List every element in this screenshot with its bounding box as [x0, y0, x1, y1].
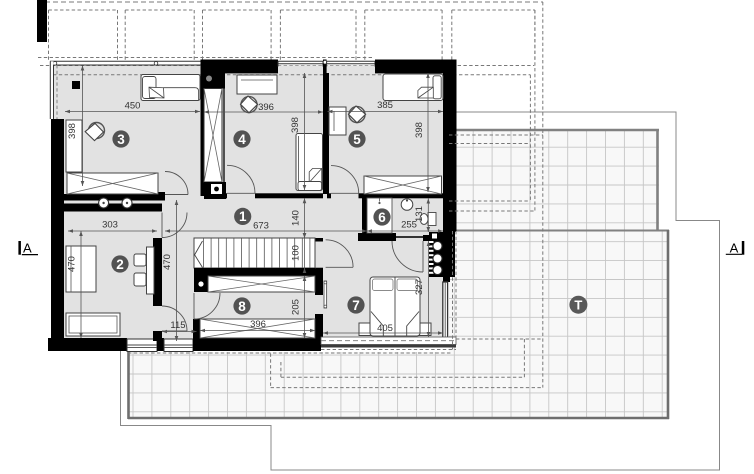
svg-text:385: 385 — [377, 100, 393, 111]
svg-text:8: 8 — [238, 299, 246, 314]
svg-text:398: 398 — [290, 117, 301, 133]
svg-text:470: 470 — [67, 256, 78, 272]
svg-text:470: 470 — [162, 254, 173, 270]
svg-text:6: 6 — [378, 210, 386, 225]
svg-text:673: 673 — [253, 221, 269, 232]
svg-text:4: 4 — [238, 132, 246, 147]
svg-text:5: 5 — [353, 132, 361, 147]
svg-text:A: A — [730, 240, 739, 255]
svg-text:396: 396 — [258, 102, 274, 113]
svg-text:450: 450 — [125, 101, 141, 112]
svg-text:396: 396 — [250, 319, 266, 330]
svg-text:205: 205 — [291, 299, 302, 315]
svg-text:327: 327 — [414, 279, 425, 295]
svg-text:115: 115 — [170, 320, 185, 331]
svg-text:T: T — [574, 298, 582, 313]
svg-text:3: 3 — [117, 132, 125, 147]
svg-text:1: 1 — [239, 209, 247, 224]
svg-text:398: 398 — [414, 122, 425, 138]
svg-text:405: 405 — [377, 323, 393, 334]
svg-text:398: 398 — [67, 123, 78, 139]
svg-text:303: 303 — [102, 220, 118, 231]
svg-text:131: 131 — [414, 206, 425, 222]
svg-text:2: 2 — [116, 257, 124, 272]
svg-text:A: A — [23, 240, 32, 255]
svg-text:7: 7 — [352, 298, 360, 313]
svg-text:140: 140 — [291, 210, 302, 226]
svg-text:100: 100 — [291, 245, 302, 261]
